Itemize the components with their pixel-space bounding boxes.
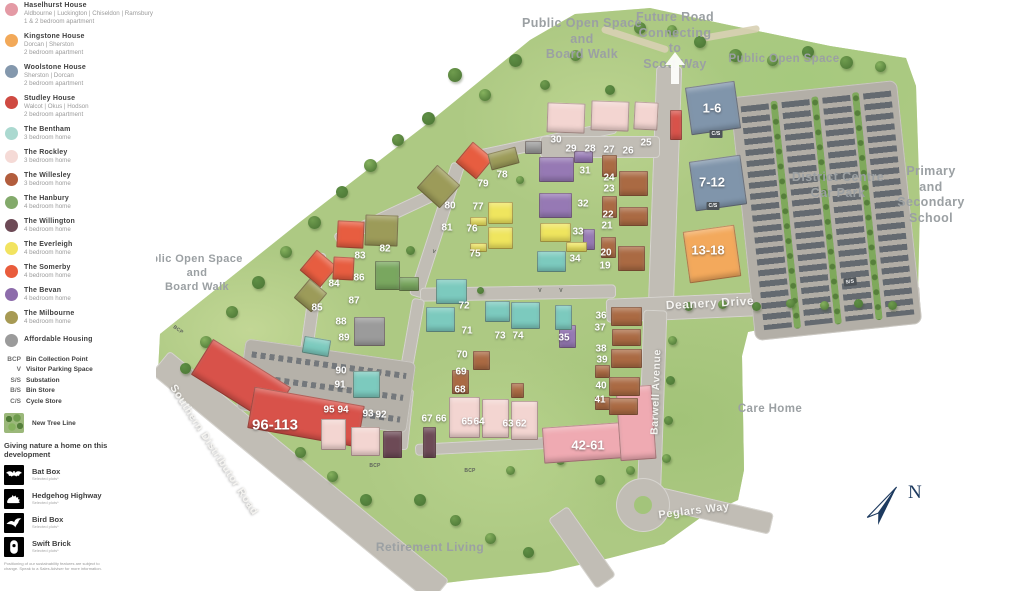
building-somerby (332, 256, 354, 280)
tree-icon (786, 299, 795, 308)
building-somerby (336, 220, 364, 248)
marker-V: V (538, 288, 542, 294)
plot-label: 89 (338, 333, 349, 344)
house-detail: Walcot | Okus | Hodson (24, 103, 89, 111)
area-label: blic Open Space and Board Walk (151, 253, 243, 294)
abbreviation-label: Substation (26, 376, 60, 386)
house-info: Haselhurst HouseAldbourne | Luckington |… (24, 2, 153, 26)
house-type: 4 bedroom home (24, 249, 73, 257)
abbreviation-code: S/S (4, 376, 21, 386)
plot-label: 26 (622, 146, 633, 157)
abbreviation-code: BCP (4, 355, 21, 365)
abbreviation-code: V (4, 365, 21, 375)
house-color-swatch (5, 96, 18, 109)
tree-icon (662, 454, 671, 463)
house-color-swatch (5, 288, 18, 301)
house-name: The Bevan (24, 287, 71, 295)
plot-label: 23 (603, 184, 614, 195)
plot-label: 34 (569, 254, 580, 265)
plot-label: 96-113 (252, 417, 298, 434)
nature-feature-item: Bird BoxSelected plots* (4, 513, 156, 533)
tree-icon (820, 301, 829, 310)
plot-label: 65 (461, 417, 472, 428)
plot-label: 64 (473, 417, 484, 428)
plot-label: 24 (603, 173, 614, 184)
house-name: Haselhurst House (24, 2, 153, 10)
tree-icon (540, 80, 550, 90)
plot-label: 13-18 (691, 243, 724, 258)
house-type: 4 bedroom home (24, 272, 71, 280)
area-label: District Centre Car Park (792, 170, 884, 201)
house-color-swatch (5, 3, 18, 16)
legend-house-item: Woolstone HouseSherston | Dorcan2 bedroo… (4, 64, 156, 88)
house-info: The Rockley3 bedroom home (24, 149, 71, 165)
new-tree-line-legend: New Tree Line (4, 413, 156, 433)
tree-icon (180, 363, 191, 374)
building-everleigh (566, 242, 587, 252)
affordable-color-swatch (5, 334, 18, 347)
building-bentham (537, 251, 566, 272)
marker-BCP: BCP (464, 468, 475, 474)
building-willesley (612, 329, 641, 346)
tree-icon (666, 376, 675, 385)
building-everleigh (540, 223, 571, 242)
nature-feature-item: Hedgehog HighwaySelected plots* (4, 489, 156, 509)
compass-arrow-icon (862, 478, 906, 532)
house-type: 4 bedroom home (24, 226, 75, 234)
plot-label: 92 (375, 410, 386, 421)
plot-label: 37 (594, 323, 605, 334)
bat-icon (4, 465, 24, 485)
affordable-housing-legend: Affordable Housing (4, 333, 156, 347)
area-label: Care Home (738, 402, 802, 416)
house-name: The Hanbury (24, 195, 71, 203)
plot-label: 85 (311, 303, 322, 314)
legend-house-item: The Rockley3 bedroom home (4, 149, 156, 165)
tree-icon (854, 299, 863, 308)
plot-label: 81 (441, 223, 452, 234)
house-type: 1 & 2 bedroom apartment (24, 18, 153, 26)
abbreviation-label: Visitor Parking Space (26, 365, 93, 375)
plot-label: 87 (348, 296, 359, 307)
building-willesley (611, 349, 642, 368)
affordable-label: Affordable Housing (24, 336, 93, 344)
tree-icon (840, 56, 853, 69)
house-type: 4 bedroom home (24, 318, 74, 326)
plot-label: 71 (461, 326, 472, 337)
plot-label: 82 (379, 244, 390, 255)
plot-label: 93 (362, 409, 373, 420)
plot-label: 94 (337, 405, 348, 416)
plot-label: 19 (599, 261, 610, 272)
swift-icon (4, 537, 24, 557)
nature-feature-legend: Bat BoxSelected plots*Hedgehog HighwaySe… (4, 465, 156, 557)
plot-label: 70 (456, 350, 467, 361)
plot-label: 62 (515, 419, 526, 430)
legend-house-item: The Bentham3 bedroom home (4, 126, 156, 142)
nature-feature-note: Selected plots* (32, 476, 60, 482)
tree-icon (516, 176, 524, 184)
building-rockley (590, 100, 629, 131)
tree-icon (595, 475, 605, 485)
plot-label: 30 (550, 135, 561, 146)
plot-label: 32 (577, 199, 588, 210)
plot-label: 20 (600, 248, 611, 259)
house-name: Kingstone House (24, 33, 85, 41)
plot-label: 35 (558, 333, 569, 344)
house-detail: Aldbourne | Luckington | Chiseldon | Ram… (24, 10, 153, 18)
building-affordable (354, 317, 385, 346)
building-bentham (511, 302, 540, 329)
building-bentham (426, 307, 455, 332)
house-type: 2 bedroom apartment (24, 49, 85, 57)
legend-abbreviation-item: VVisitor Parking Space (4, 365, 156, 375)
building-willesley (609, 398, 638, 415)
house-name: Studley House (24, 95, 89, 103)
legend-abbreviation-item: S/SSubstation (4, 376, 156, 386)
house-info: Kingstone HouseDorcan | Sherston2 bedroo… (24, 33, 85, 57)
plot-label: 29 (565, 144, 576, 155)
plot-label: 95 (323, 405, 334, 416)
house-type: 2 bedroom apartment (24, 80, 86, 88)
nature-feature-info: Bat BoxSelected plots* (32, 465, 60, 482)
house-info: Studley HouseWalcot | Okus | Hodson2 bed… (24, 95, 89, 119)
house-name: The Milbourne (24, 310, 74, 318)
tree-icon (308, 216, 321, 229)
site-plan-page: 1-67-1213-1842-6196-11330292827262531242… (0, 0, 1024, 591)
plot-label: 84 (328, 279, 339, 290)
plot-label: 31 (579, 166, 590, 177)
plot-label: 88 (335, 317, 346, 328)
plot-label: 40 (595, 381, 606, 392)
building-rockley (351, 427, 380, 456)
legend-house-item: Kingstone HouseDorcan | Sherston2 bedroo… (4, 33, 156, 57)
plot-label: 25 (640, 138, 651, 149)
tree-icon (226, 306, 238, 318)
marker-BCP: BCP (369, 463, 380, 469)
building-everleigh (488, 202, 513, 224)
area-label: Public Open Space and Board Walk (522, 16, 642, 63)
plot-label: 69 (455, 367, 466, 378)
future-road-arrow-icon (664, 52, 686, 84)
plot-label: 86 (353, 273, 364, 284)
house-color-swatch (5, 127, 18, 140)
house-color-swatch (5, 311, 18, 324)
house-name: The Rockley (24, 149, 71, 157)
plot-label: 42-61 (571, 438, 604, 453)
tree-line-label: New Tree Line (32, 420, 76, 427)
tree-icon (668, 336, 677, 345)
legend-house-item: The Somerby4 bedroom home (4, 264, 156, 280)
plot-label: 80 (444, 201, 455, 212)
house-color-swatch (5, 242, 18, 255)
house-name: The Somerby (24, 264, 71, 272)
nature-feature-name: Bird Box (32, 515, 63, 524)
building-hanbury (375, 261, 400, 290)
nature-feature-note: Selected plots* (32, 500, 102, 506)
building-willesley (473, 351, 490, 370)
house-type: 3 bedroom home (24, 157, 71, 165)
house-color-swatch (5, 219, 18, 232)
sustainability-disclaimer: Positioning of our sustainability featur… (4, 561, 114, 571)
plot-label: 7-12 (699, 175, 725, 190)
plot-label: 79 (477, 179, 488, 190)
house-info: The Somerby4 bedroom home (24, 264, 71, 280)
house-type: 2 bedroom apartment (24, 111, 89, 119)
plot-label: 21 (601, 221, 612, 232)
building-willesley (611, 307, 642, 326)
house-color-swatch (5, 265, 18, 278)
legend-affordable-item: Affordable Housing (4, 333, 156, 347)
legend-house-item: The Bevan4 bedroom home (4, 287, 156, 303)
bird-icon (4, 513, 24, 533)
abbreviation-code: B/S (4, 386, 21, 396)
nature-feature-name: Swift Brick (32, 539, 71, 548)
tree-icon (506, 466, 515, 475)
plot-label: 75 (469, 249, 480, 260)
plot-label: 76 (466, 224, 477, 235)
plot-label: 41 (594, 395, 605, 406)
tree-icon (392, 134, 404, 146)
building-bevan (539, 157, 574, 182)
plot-label: 1-6 (703, 101, 722, 116)
nature-feature-item: Bat BoxSelected plots* (4, 465, 156, 485)
house-type: 3 bedroom home (24, 134, 71, 142)
plot-label: 73 (494, 331, 505, 342)
plot-label: 28 (584, 144, 595, 155)
plot-label: 66 (435, 414, 446, 425)
tree-icon (523, 547, 534, 558)
house-color-swatch (5, 34, 18, 47)
area-label: Public Open Space (729, 52, 840, 66)
tree-icon (364, 159, 377, 172)
building-bentham (555, 305, 572, 330)
tree-icon (664, 416, 673, 425)
house-info: The Milbourne4 bedroom home (24, 310, 74, 326)
tree-icon (450, 515, 461, 526)
plot-label: 36 (595, 311, 606, 322)
nature-feature-info: Hedgehog HighwaySelected plots* (32, 489, 102, 506)
nature-feature-note: Selected plots* (32, 524, 63, 530)
plot-label: 39 (596, 355, 607, 366)
house-color-swatch (5, 150, 18, 163)
house-name: The Bentham (24, 126, 71, 134)
building-willesley (619, 207, 648, 226)
house-name: Woolstone House (24, 64, 86, 72)
legend-abbreviation-item: BCPBin Collection Point (4, 355, 156, 365)
nature-feature-info: Swift BrickSelected plots* (32, 537, 71, 554)
plot-label: 38 (595, 344, 606, 355)
house-info: The Bevan4 bedroom home (24, 287, 71, 303)
nature-feature-note: Selected plots* (32, 548, 71, 554)
tree-icon (626, 466, 635, 475)
building-willesley (618, 246, 645, 271)
legend-house-item: Haselhurst HouseAldbourne | Luckington |… (4, 2, 156, 26)
legend-abbreviation-item: C/SCycle Store (4, 397, 156, 407)
tree-icon (875, 61, 886, 72)
building-rockley (633, 101, 658, 130)
nature-feature-name: Hedgehog Highway (32, 491, 102, 500)
plot-label: 33 (572, 227, 583, 238)
plot-label: 27 (603, 145, 614, 156)
tree-icon (280, 246, 292, 258)
building-rockley (321, 419, 346, 450)
plot-label: 67 (421, 414, 432, 425)
nature-heading: Giving nature a home on this development (4, 441, 114, 459)
plot-label: 74 (512, 331, 523, 342)
house-color-swatch (5, 65, 18, 78)
abbreviation-legend: BCPBin Collection PointVVisitor Parking … (4, 355, 156, 407)
tree-icon (448, 68, 462, 82)
plot-label: 68 (454, 385, 465, 396)
house-type: 4 bedroom home (24, 295, 71, 303)
plot-label: 91 (334, 380, 345, 391)
building-bentham (485, 301, 510, 322)
tree-icon (406, 246, 415, 255)
plot-label: 83 (354, 251, 365, 262)
tree-icon (414, 494, 426, 506)
plot-label: 22 (602, 210, 613, 221)
plot-label: 77 (472, 202, 483, 213)
house-name: The Willington (24, 218, 75, 226)
compass-n-label: N (908, 482, 922, 504)
building-willesley (595, 365, 610, 378)
building-affordable (525, 141, 542, 154)
house-info: Woolstone HouseSherston | Dorcan2 bedroo… (24, 64, 86, 88)
plot-label: 63 (502, 419, 513, 430)
house-detail: Dorcan | Sherston (24, 41, 85, 49)
house-info: The Everleigh4 bedroom home (24, 241, 73, 257)
abbreviation-code: C/S (4, 397, 21, 407)
marker-V: V (559, 288, 563, 294)
marker-CS: C/S (710, 130, 723, 138)
legend-house-item: Studley HouseWalcot | Okus | Hodson2 bed… (4, 95, 156, 119)
legend-house-item: The Milbourne4 bedroom home (4, 310, 156, 326)
building-willington (423, 427, 436, 458)
plot-label: 78 (496, 170, 507, 181)
building-willington (383, 431, 402, 458)
nature-feature-info: Bird BoxSelected plots* (32, 513, 63, 530)
house-type: 3 bedroom home (24, 180, 71, 188)
house-info: The Willington4 bedroom home (24, 218, 75, 234)
affordable-info: Affordable Housing (24, 333, 93, 344)
nature-feature-item: Swift BrickSelected plots* (4, 537, 156, 557)
tree-icon (295, 447, 306, 458)
area-label: Primary and Secondary School (897, 164, 965, 227)
roundabout-island (634, 496, 652, 514)
building-bevan (539, 193, 572, 218)
tree-icon (888, 301, 897, 310)
building-rockley (546, 102, 585, 133)
building-willesley (511, 383, 524, 398)
tree-icon (605, 85, 615, 95)
house-detail: Sherston | Dorcan (24, 72, 86, 80)
legend-abbreviation-item: B/SBin Store (4, 386, 156, 396)
legend-house-item: The Willington4 bedroom home (4, 218, 156, 234)
tree-icon (479, 89, 491, 101)
legend-house-item: The Willesley3 bedroom home (4, 172, 156, 188)
building-hanbury (399, 277, 419, 291)
abbreviation-label: Bin Store (26, 386, 55, 396)
building-willesley (619, 171, 648, 196)
house-name: The Everleigh (24, 241, 73, 249)
tree-icon (477, 287, 484, 294)
legend-house-item: The Everleigh4 bedroom home (4, 241, 156, 257)
house-type-legend: Haselhurst HouseAldbourne | Luckington |… (4, 2, 156, 326)
house-color-swatch (5, 173, 18, 186)
area-label: Retirement Living (376, 540, 484, 555)
nature-feature-name: Bat Box (32, 467, 60, 476)
legend-house-item: The Hanbury4 bedroom home (4, 195, 156, 211)
building-bentham (353, 371, 380, 398)
house-type: 4 bedroom home (24, 203, 71, 211)
marker-CS: C/S (707, 202, 720, 210)
tree-icon (360, 494, 372, 506)
building-studley (670, 110, 682, 140)
tree-icon (422, 112, 435, 125)
tree-icon (485, 533, 496, 544)
tree-icon (336, 186, 348, 198)
building-everleigh (488, 227, 513, 249)
tree-line-swatch-icon (4, 413, 24, 433)
house-info: The Willesley3 bedroom home (24, 172, 71, 188)
plot-label: 72 (458, 301, 469, 312)
building-milbourne (364, 214, 398, 246)
legend-panel: Haselhurst HouseAldbourne | Luckington |… (0, 0, 156, 591)
north-compass: N (862, 478, 936, 548)
house-info: The Bentham3 bedroom home (24, 126, 71, 142)
marker-SS: S/S (843, 277, 856, 286)
plot-label: 90 (335, 366, 346, 377)
house-info: The Hanbury4 bedroom home (24, 195, 71, 211)
abbreviation-label: Cycle Store (26, 397, 62, 407)
building-willesley (609, 377, 640, 396)
tree-icon (509, 54, 522, 67)
hedgehog-icon (4, 489, 24, 509)
house-color-swatch (5, 196, 18, 209)
tree-icon (252, 276, 265, 289)
house-name: The Willesley (24, 172, 71, 180)
abbreviation-label: Bin Collection Point (26, 355, 88, 365)
tree-icon (327, 471, 338, 482)
